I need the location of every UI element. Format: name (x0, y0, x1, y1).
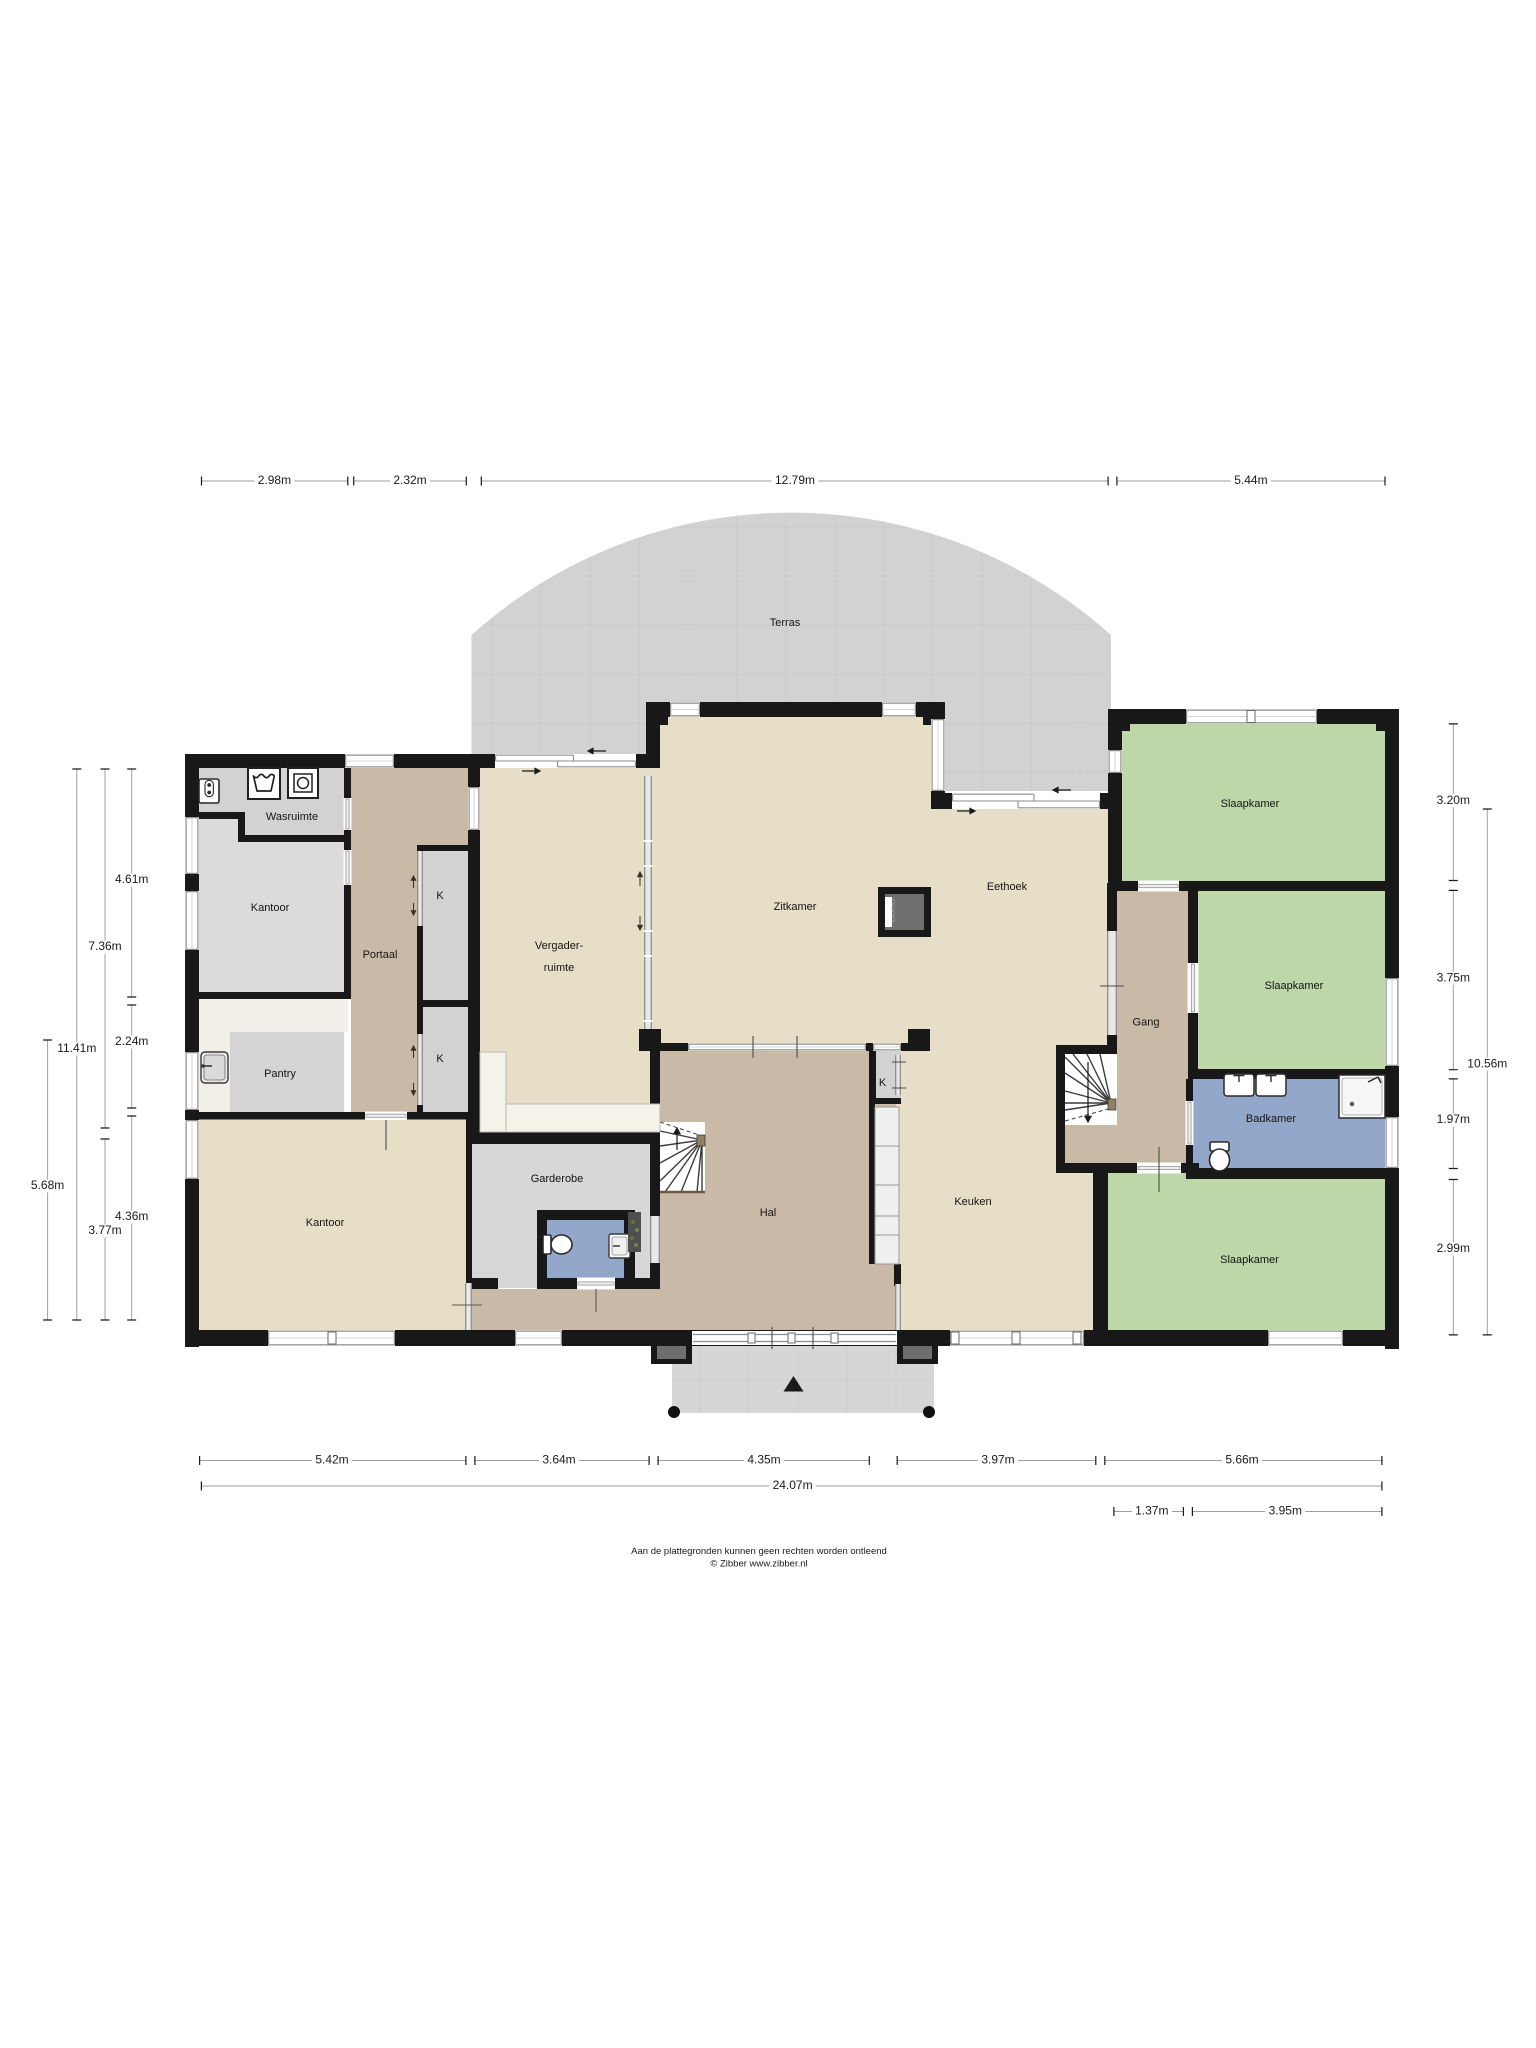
svg-text:24.07m: 24.07m (773, 1478, 813, 1492)
svg-text:5.66m: 5.66m (1225, 1453, 1258, 1467)
svg-text:1.37m: 1.37m (1135, 1504, 1168, 1518)
svg-text:Aan de plattegronden kunnen ge: Aan de plattegronden kunnen geen rechten… (631, 1546, 887, 1557)
svg-text:3.77m: 3.77m (88, 1223, 121, 1237)
svg-text:Kantoor: Kantoor (251, 902, 290, 914)
svg-text:3.20m: 3.20m (1437, 793, 1470, 807)
svg-text:Slaapkamer: Slaapkamer (1265, 980, 1324, 992)
svg-text:4.61m: 4.61m (115, 872, 148, 886)
svg-text:12.79m: 12.79m (775, 473, 815, 487)
svg-text:4.36m: 4.36m (115, 1209, 148, 1223)
svg-text:Portaal: Portaal (363, 949, 398, 961)
svg-text:Gang: Gang (1133, 1017, 1160, 1029)
svg-text:Slaapkamer: Slaapkamer (1221, 798, 1280, 810)
svg-text:Garderobe: Garderobe (531, 1173, 584, 1185)
svg-text:5.68m: 5.68m (31, 1178, 64, 1192)
svg-text:Kantoor: Kantoor (306, 1217, 345, 1229)
svg-text:Wasruimte: Wasruimte (266, 811, 318, 823)
svg-text:2.98m: 2.98m (258, 473, 291, 487)
svg-text:2.24m: 2.24m (115, 1034, 148, 1048)
svg-text:K: K (436, 890, 444, 902)
svg-text:3.97m: 3.97m (981, 1453, 1014, 1467)
svg-text:Vergader-: Vergader- (535, 940, 584, 952)
svg-text:K: K (436, 1053, 444, 1065)
svg-text:3.95m: 3.95m (1269, 1504, 1302, 1518)
svg-text:K: K (879, 1077, 887, 1089)
svg-text:Terras: Terras (770, 617, 801, 629)
svg-text:3.75m: 3.75m (1437, 970, 1470, 984)
svg-text:10.56m: 10.56m (1467, 1056, 1507, 1070)
svg-text:5.42m: 5.42m (315, 1453, 348, 1467)
svg-text:Keuken: Keuken (954, 1196, 991, 1208)
svg-text:2.99m: 2.99m (1437, 1241, 1470, 1255)
svg-text:Pantry: Pantry (264, 1068, 296, 1080)
svg-text:3.64m: 3.64m (542, 1453, 575, 1467)
svg-text:ruimte: ruimte (544, 962, 575, 974)
svg-text:1.97m: 1.97m (1437, 1112, 1470, 1126)
svg-text:Eethoek: Eethoek (987, 881, 1028, 893)
svg-text:7.36m: 7.36m (88, 939, 121, 953)
svg-text:Badkamer: Badkamer (1246, 1113, 1296, 1125)
svg-text:5.44m: 5.44m (1234, 473, 1267, 487)
svg-text:11.41m: 11.41m (57, 1041, 96, 1055)
svg-text:Hal: Hal (760, 1207, 777, 1219)
svg-text:Zitkamer: Zitkamer (774, 901, 817, 913)
svg-text:2.32m: 2.32m (393, 473, 426, 487)
svg-text:4.35m: 4.35m (747, 1453, 780, 1467)
svg-text:© Zibber www.zibber.nl: © Zibber www.zibber.nl (710, 1559, 807, 1570)
svg-text:Slaapkamer: Slaapkamer (1220, 1254, 1279, 1266)
